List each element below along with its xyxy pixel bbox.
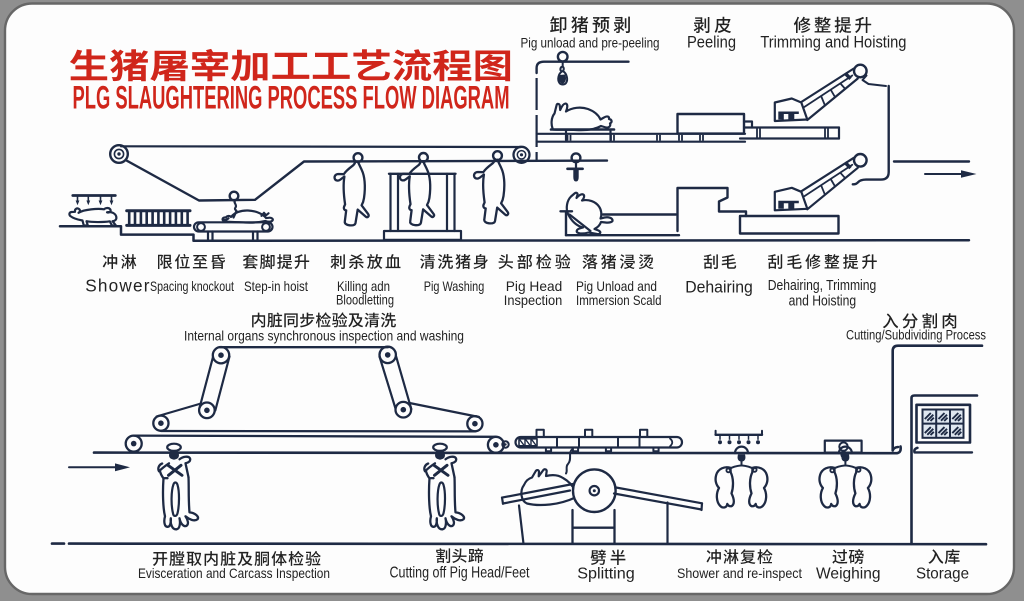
svg-text:Dehairing, Trimming: Dehairing, Trimming	[768, 278, 877, 294]
svg-text:PLG SLAUGHTERING PROCESS FLOW: PLG SLAUGHTERING PROCESS FLOW DIAGRAM	[73, 80, 510, 116]
svg-text:Pig Head: Pig Head	[506, 279, 563, 294]
svg-text:Internal organs synchronous in: Internal organs synchronous inspection a…	[184, 328, 464, 344]
svg-text:Step-in hoist: Step-in hoist	[244, 279, 308, 294]
svg-text:Dehairing: Dehairing	[685, 278, 753, 297]
svg-text:Bloodletting: Bloodletting	[336, 293, 394, 308]
svg-text:Storage: Storage	[916, 566, 969, 583]
svg-text:Cutting/Subdividing Process: Cutting/Subdividing Process	[846, 328, 986, 343]
svg-text:Inspection: Inspection	[504, 293, 563, 308]
svg-text:Peeling: Peeling	[687, 33, 736, 52]
svg-text:Weighing: Weighing	[816, 566, 881, 583]
svg-text:Shower: Shower	[85, 276, 150, 296]
svg-text:Splitting: Splitting	[577, 566, 635, 583]
svg-text:Immersion Scald: Immersion Scald	[576, 293, 662, 308]
svg-text:Spacing knockout: Spacing knockout	[150, 279, 234, 294]
svg-text:Evisceration and Carcass Inspe: Evisceration and Carcass Inspection	[138, 565, 330, 581]
svg-text:Pig Washing: Pig Washing	[424, 279, 485, 294]
svg-text:Pig unload and pre-peeling: Pig unload and pre-peeling	[521, 36, 660, 52]
svg-text:Cutting off Pig Head/Feet: Cutting off Pig Head/Feet	[390, 565, 530, 582]
svg-text:Trimming and Hoisting: Trimming and Hoisting	[760, 33, 906, 52]
svg-text:Pig Unload and: Pig Unload and	[576, 279, 657, 294]
svg-text:Shower and re-inspect: Shower and re-inspect	[677, 565, 802, 581]
svg-text:and Hoisting: and Hoisting	[789, 294, 857, 310]
